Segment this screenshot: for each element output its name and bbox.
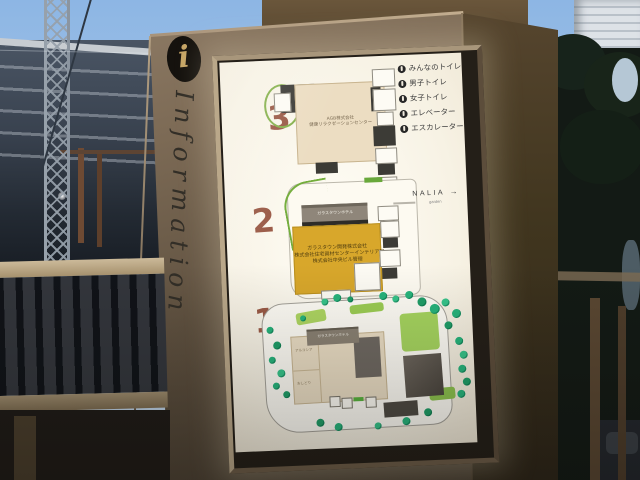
- floor3-room: [373, 88, 397, 111]
- escalator-icon: [400, 124, 408, 132]
- mens-toilet-icon: [398, 79, 406, 87]
- floor1-room-label: アルコシア: [295, 347, 313, 353]
- parking-area: [403, 353, 444, 398]
- railing-post: [618, 306, 626, 480]
- tree-icon: [444, 321, 452, 329]
- tree-icon: [460, 351, 468, 359]
- tree-icon: [463, 377, 471, 385]
- floor3-shaft: [378, 163, 395, 175]
- railing-left: [0, 258, 168, 414]
- railing-post: [590, 298, 600, 480]
- floor3-room: [375, 147, 398, 164]
- floor1-kiosk-green: [353, 397, 363, 401]
- tree-canopy: [560, 110, 640, 184]
- floor2-building-label: ガラスタウンホテル: [302, 208, 368, 217]
- elevator-icon: [399, 109, 407, 117]
- photo-canvas: i Information みんなのトイレ 男子トイレ 女子トイレ: [0, 0, 640, 480]
- floor1-room-label: おしどり: [297, 380, 311, 386]
- floor1-room-lower: おしどり: [293, 369, 321, 403]
- legend-label: 男子トイレ: [409, 76, 447, 89]
- floor3-room: [376, 111, 394, 126]
- info-symbol-letter: i: [177, 42, 191, 73]
- legend-label: 女子トイレ: [410, 91, 448, 104]
- tree-icon: [452, 309, 461, 318]
- lightbox-panel: みんなのトイレ 男子トイレ 女子トイレ エレベーター エスカレーター: [219, 53, 477, 453]
- lower-structure: [14, 416, 36, 480]
- floor2-room: [377, 205, 399, 221]
- floor3-room: [274, 93, 292, 113]
- legend: みんなのトイレ 男子トイレ 女子トイレ エレベーター エスカレーター: [397, 59, 462, 137]
- floor1-kiosk: [329, 396, 340, 407]
- tree-icon: [458, 365, 466, 373]
- accessible-toilet-icon: [398, 64, 406, 72]
- floor1-kiosk: [365, 396, 376, 407]
- tree-icon: [374, 422, 381, 429]
- floor2-room: [354, 262, 381, 291]
- floor2-shaft: [382, 267, 397, 279]
- floor1-building-label: ガラスタウンホテル: [307, 331, 359, 339]
- floor3-room: [372, 68, 396, 87]
- floor3-shaft: [373, 125, 396, 146]
- steel-frame-column: [78, 148, 84, 243]
- floor3-entrance: [316, 162, 338, 174]
- tree-icon: [457, 390, 465, 398]
- railing-rail-right: [556, 271, 640, 281]
- sky-gap: [612, 58, 638, 102]
- womens-toilet-icon: [399, 94, 407, 102]
- lightbox-frame: みんなのトイレ 男子トイレ 女子トイレ エレベーター エスカレーター: [212, 45, 499, 474]
- legend-label: エスカレーター: [411, 121, 464, 134]
- nalia-sublabel: garden: [409, 199, 461, 206]
- railing-slats: [0, 274, 167, 396]
- nalia-wayfinding: NALIA → garden: [408, 181, 461, 212]
- nalia-label: NALIA: [412, 189, 445, 197]
- legend-label: みんなのトイレ: [408, 61, 461, 74]
- floor1-building-roof: ガラスタウンホテル: [306, 327, 359, 346]
- legend-item: エスカレーター: [400, 119, 463, 137]
- tree-icon: [441, 298, 449, 306]
- crane-mast: [44, 0, 70, 280]
- steel-frame-column: [97, 152, 102, 247]
- floor3-tenant-text: AGB株式会社 健康リラクゼーションセンター: [297, 114, 385, 128]
- floor2-shaft: [383, 237, 398, 248]
- lawn-patch: [399, 311, 440, 352]
- parking-area: [383, 400, 418, 418]
- legend-label: エレベーター: [410, 106, 455, 119]
- railing-bottom-rail: [0, 392, 168, 412]
- tree-icon: [455, 337, 463, 345]
- floor-number-2: 2: [250, 200, 276, 241]
- floor2-room: [379, 249, 401, 267]
- floor2-room: [380, 220, 400, 238]
- floor2-green-strip: [364, 177, 382, 183]
- floor1-kiosk: [341, 397, 352, 408]
- nalia-arrow-icon: →: [449, 187, 457, 196]
